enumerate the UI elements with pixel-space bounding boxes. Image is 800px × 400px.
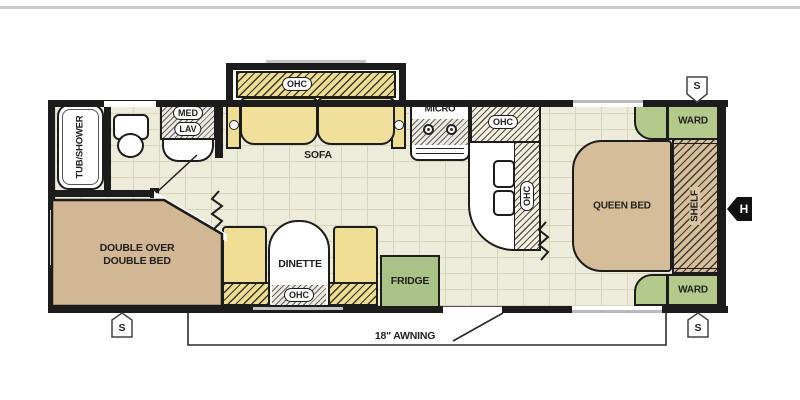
bathroom-door-line xyxy=(156,155,197,193)
kitchen-side-ohc-label: OHC xyxy=(520,181,534,211)
med-label: MED xyxy=(173,106,203,120)
micro-label: MICRO xyxy=(425,104,456,115)
dinette-label: DINETTE xyxy=(278,258,322,270)
speaker-letter-bottom-left: S xyxy=(118,322,125,334)
awning-label: 18" AWNING xyxy=(375,330,435,342)
tub-shower-label: TUB/SHOWER xyxy=(75,116,86,179)
ward-top-label: WARD xyxy=(678,116,708,127)
sofa-ohc-label: OHC xyxy=(282,77,312,91)
kitchen-ohc-label: OHC xyxy=(488,115,518,129)
floorplan-canvas: OHC SOFA TUB/SHOWER MED LAV MICRO OHC OH… xyxy=(0,0,800,400)
hitch-letter: H xyxy=(740,202,749,216)
lav-label: LAV xyxy=(174,122,201,136)
ward-bottom-label: WARD xyxy=(678,285,708,296)
speaker-letter-bottom-right: S xyxy=(694,322,701,334)
fridge-label: FRIDGE xyxy=(391,275,429,287)
awning-pointer-line xyxy=(453,313,503,341)
dinette-ohc-label: OHC xyxy=(284,288,314,302)
double-bed-label-line2: DOUBLE BED xyxy=(103,255,170,267)
double-bed-label-line1: DOUBLE OVER xyxy=(100,242,175,254)
wall-break-zigzag-front xyxy=(212,191,222,229)
sofa-label: SOFA xyxy=(304,149,332,161)
shelf-label: SHELF xyxy=(690,187,701,225)
queen-bed-label: QUEEN BED xyxy=(593,201,651,212)
speaker-letter-top: S xyxy=(693,80,700,92)
wall-break-zigzag-counter xyxy=(539,222,548,260)
